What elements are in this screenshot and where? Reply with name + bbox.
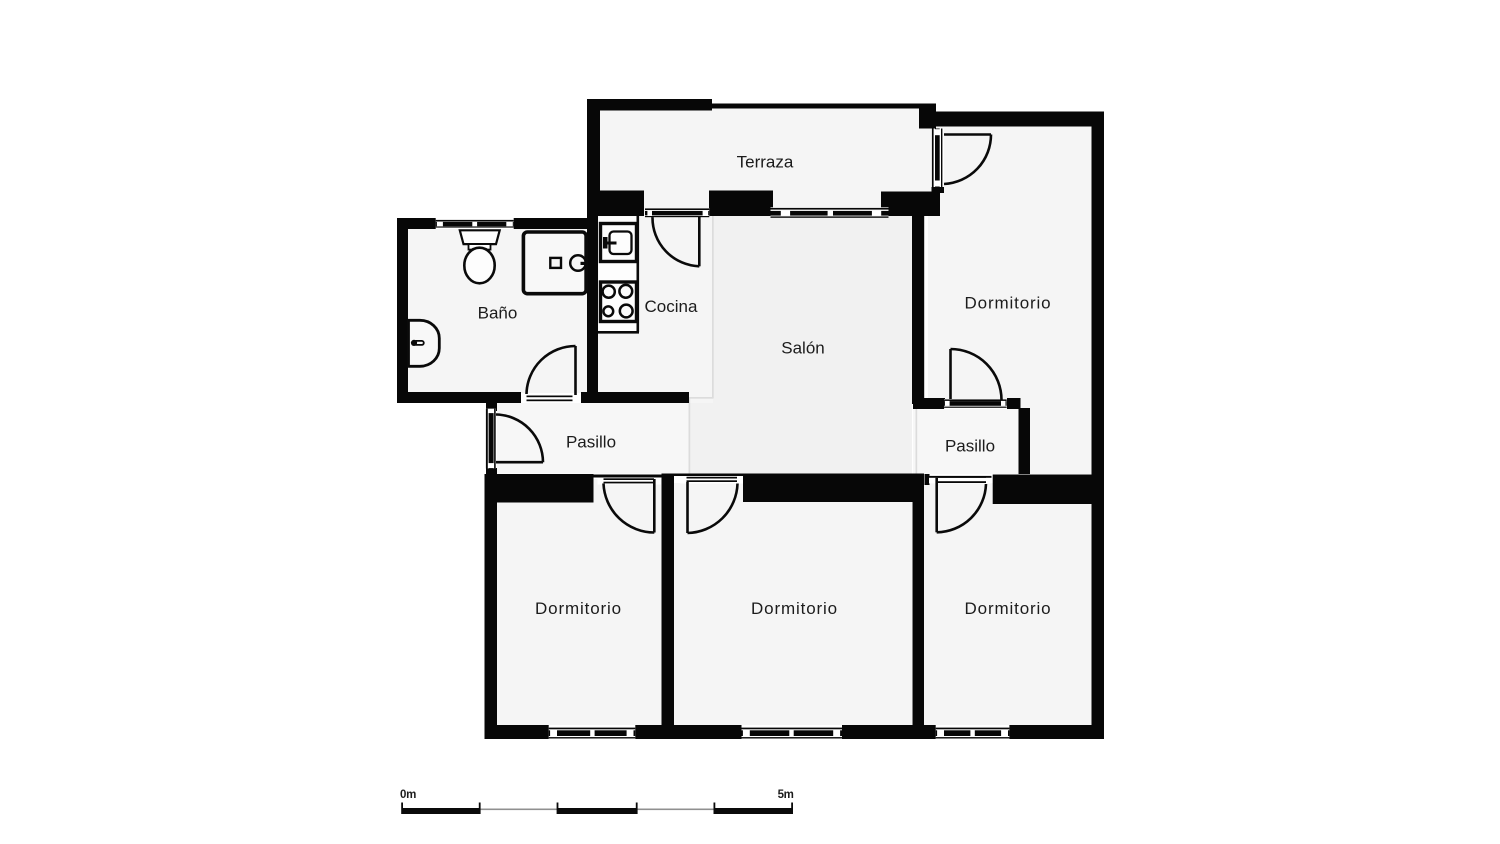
svg-text:0m: 0m [400,789,416,801]
svg-text:Cocina: Cocina [645,297,698,316]
svg-text:Dormitorio: Dormitorio [751,599,838,618]
svg-text:Dormitorio: Dormitorio [965,599,1052,618]
svg-text:Dormitorio: Dormitorio [965,294,1052,313]
svg-text:Terraza: Terraza [737,153,794,172]
svg-text:Pasillo: Pasillo [566,433,616,452]
svg-text:Baño: Baño [478,304,518,323]
svg-text:Salón: Salón [781,339,824,358]
svg-text:Pasillo: Pasillo [945,437,995,456]
svg-text:Dormitorio: Dormitorio [535,599,622,618]
svg-text:5m: 5m [778,789,794,801]
